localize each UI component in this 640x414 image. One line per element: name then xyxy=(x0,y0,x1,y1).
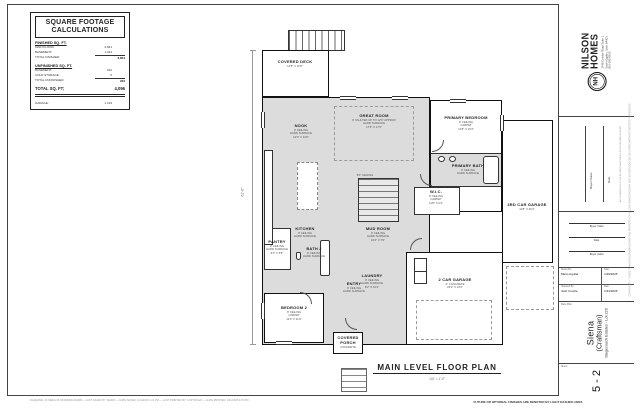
initial-label: Buyer Initial xyxy=(559,253,634,256)
double-rule xyxy=(35,94,125,98)
room-label-covered-porch: COVERED PORCHCONCRETE xyxy=(332,336,364,349)
row-label: TOTAL SQ. FT; xyxy=(35,86,95,93)
garage-door-dashed xyxy=(416,300,492,340)
garage-row: GARAGE: 1,193 xyxy=(35,101,125,105)
window xyxy=(340,96,356,100)
main-plan-label: Main Plan: xyxy=(561,303,572,306)
logo-section: NH NILSON HOMES 1748 Combe Road Suite 1 … xyxy=(559,4,634,117)
grand-total-row: TOTAL SQ. FT; 4,096 xyxy=(35,86,125,93)
buyer-initials-section: Buyer Initial Date Buyer Initial xyxy=(559,212,634,268)
room-detail: 10'4" X 7'0" xyxy=(352,239,404,243)
future-finish-dashed xyxy=(506,266,554,310)
brand-line: HOMES xyxy=(590,32,599,68)
drawn-by-cell: Drawn By: Mario Aguilar xyxy=(559,268,602,285)
ceiling-drop-note: 8'0" CEILING AT DROP xyxy=(338,174,392,181)
checked-by-value: Josh Crowle xyxy=(561,289,599,293)
buyer-notes-section: Buyer Notes Date ALL CHANGES MUST BE INI… xyxy=(559,117,634,212)
window xyxy=(276,341,292,345)
square-footage-title-line1: SQUARE FOOTAGE xyxy=(36,19,124,27)
room-label-nook: NOOK9' CEILINGHARD SURFACE12'0" X 13'0" xyxy=(276,124,326,140)
nh-monogram-icon: NH xyxy=(587,72,606,91)
room-detail: 23'0" X 24'4" xyxy=(424,286,486,290)
left-dimension-line xyxy=(252,50,253,345)
window xyxy=(450,99,466,103)
third-car-garage-area xyxy=(502,120,553,263)
window xyxy=(261,112,265,128)
room-detail: 12'8" X 10'0" xyxy=(266,65,324,69)
drawn-by-value: Mario Aguilar xyxy=(561,272,599,276)
room-detail: 11'8" X 6'4" xyxy=(414,202,458,206)
initial-line xyxy=(569,229,625,238)
row-value: 4,096 xyxy=(95,86,125,93)
row-label: TOTAL UNFINISHED: xyxy=(35,78,95,84)
room-detail: 8'2" X 10'4" xyxy=(350,286,394,290)
copyright-text: COPYRIGHT — THESE PLANS AND DRAWINGS ARE… xyxy=(629,10,632,390)
date-label: Date xyxy=(607,177,611,183)
title-block-panel: NH NILSON HOMES 1748 Combe Road Suite 1 … xyxy=(558,4,634,396)
plan-name: Siena xyxy=(585,320,595,345)
window xyxy=(500,115,504,131)
initial-line xyxy=(569,243,625,252)
room-detail: HARD SURFACE xyxy=(446,172,490,176)
plan-name-block: Siena (Craftsman) Stagecoach Estates - L… xyxy=(585,303,608,363)
row-label: TOTAL FINISHED: xyxy=(35,55,95,61)
initial-line xyxy=(569,215,625,224)
drawn-by-grid: Drawn By: Mario Aguilar Date: 1/29/2025 … xyxy=(559,268,634,301)
logo-initials: NH xyxy=(594,77,600,86)
room-detail: HARD SURFACE xyxy=(284,235,326,239)
room-label-great-room: GREAT ROOM9' VAULTED UP TO 12'0" APPROXH… xyxy=(334,114,414,130)
brand-block: NILSON HOMES 1748 Combe Road Suite 1 Sou… xyxy=(581,29,612,69)
row-label: GARAGE: xyxy=(35,101,95,105)
sheet-number: 5 - 2 xyxy=(591,370,603,392)
room-label-bath-2: BATH 29' CEILINGHARD SURFACE xyxy=(294,247,334,259)
room-label-pantry: PANTRY9' CEILINGHARD SURFACE6'0" X 6'8" xyxy=(262,240,292,256)
left-dimension-text: 61'-0" xyxy=(240,188,244,197)
sheet-label: Sheet: xyxy=(561,365,568,368)
subdivision-lot: Stagecoach Estates - Lot 229 xyxy=(604,308,608,358)
room-detail: CONCRETE xyxy=(332,346,364,350)
row-value: 242 xyxy=(95,78,125,84)
room-detail: 17'8" X 17'0" xyxy=(334,126,414,130)
room-label-primary-bath: PRIMARY BATH9' CEILINGHARD SURFACE xyxy=(446,164,490,176)
room-label-2-car-garage: 2 CAR GARAGE4" CONCRETE23'0" X 24'4" xyxy=(424,278,486,290)
room-label-laundry: LAUNDRY9' CEILINGHARD SURFACE8'2" X 10'4… xyxy=(350,274,394,290)
covered-deck-area xyxy=(262,50,329,97)
total-finished-row: TOTAL FINISHED: 3,854 xyxy=(35,55,125,61)
square-footage-title-line2: CALCULATIONS xyxy=(36,27,124,35)
square-footage-title: SQUARE FOOTAGE CALCULATIONS xyxy=(35,16,125,38)
drawn-by-label: Drawn By: xyxy=(561,269,599,271)
buyer-notes-label: Buyer Notes xyxy=(589,172,593,189)
room-detail: 12'0" X 13'0" xyxy=(276,136,326,140)
washer-dryer-divider xyxy=(414,271,427,272)
brand-name: NILSON HOMES xyxy=(581,32,599,68)
plan-scale: 1/4" = 1'-0" xyxy=(352,377,522,381)
room-detail: 13'8" X 15'4" xyxy=(438,128,494,132)
room-label-kitchen: KITCHEN9' CEILINGHARD SURFACE xyxy=(284,227,326,239)
dashed-lines-note: FUTURE OR OPTIONAL FINISHES ARE DENOTED … xyxy=(458,400,598,404)
primary-sink xyxy=(438,156,445,162)
total-unfinished-row: TOTAL UNFINISHED: 242 xyxy=(35,78,125,84)
room-detail: 12'4" X 11'0" xyxy=(268,318,320,322)
room-label-covered-deck: COVERED DECK12'8" X 10'0" xyxy=(266,60,324,68)
company-address: 1748 Combe Road Suite 1 South Ogden, Uta… xyxy=(601,36,612,69)
kitchen-island xyxy=(297,162,318,210)
checked-by-cell: Checked By: Josh Crowle xyxy=(559,285,602,301)
signature-line xyxy=(585,126,586,202)
checked-by-label: Checked By: xyxy=(561,286,599,288)
primary-sink xyxy=(449,156,456,162)
plan-name-section: Main Plan: Siena (Craftsman) Stagecoach … xyxy=(559,302,634,364)
room-label-wic: W.I.C.9' CEILINGCARPET11'8" X 6'4" xyxy=(414,190,458,206)
square-footage-box: SQUARE FOOTAGE CALCULATIONS FINISHED SQ.… xyxy=(30,12,130,110)
file-info-text: FILENAME: 30 SIENA 3S STANDING RAMB — LA… xyxy=(30,399,360,402)
window xyxy=(392,96,408,100)
note-line: AT DROP xyxy=(338,178,392,182)
plan-style: (Craftsman) xyxy=(596,314,603,351)
signature-line xyxy=(603,126,604,202)
kitchen-counter xyxy=(264,150,273,245)
notes-disclaimer: ALL CHANGES MUST BE INITIALED AND DATED … xyxy=(620,119,622,209)
basement-stairwell xyxy=(358,178,399,222)
room-detail: HARD SURFACE xyxy=(294,255,334,259)
initial-label: Date xyxy=(559,239,634,242)
drawn-by-section: Drawn By: Mario Aguilar Date: 1/29/2025 … xyxy=(559,268,634,302)
room-label-3rd-car-garage: 3RD CAR GARAGE11'8" X 26'4" xyxy=(499,203,555,211)
room-detail: 11'8" X 26'4" xyxy=(499,208,555,212)
room-label-primary-bedroom: PRIMARY BEDROOM9' CEILINGCARPET13'8" X 1… xyxy=(438,116,494,132)
initial-label: Buyer Initial xyxy=(559,225,634,228)
nilson-homes-logo: NH NILSON HOMES 1748 Combe Road Suite 1 … xyxy=(581,10,612,110)
row-value: 1,193 xyxy=(95,101,125,105)
window xyxy=(261,303,265,319)
plan-title-block: MAIN LEVEL FLOOR PLAN 1/4" = 1'-0" xyxy=(352,357,522,381)
row-value: 3,854 xyxy=(95,55,125,61)
room-detail: 6'0" X 6'8" xyxy=(262,252,292,256)
room-label-mud-room: MUD ROOM9' CEILINGHARD SURFACE10'4" X 7'… xyxy=(352,227,404,243)
plan-title: MAIN LEVEL FLOOR PLAN xyxy=(373,363,500,374)
drawing-sheet: SQUARE FOOTAGE CALCULATIONS FINISHED SQ.… xyxy=(0,0,640,414)
room-label-bedroom-2: BEDROOM 29' CEILINGCARPET12'4" X 11'0" xyxy=(268,306,320,322)
room-detail: HARD SURFACE xyxy=(336,290,372,294)
address-line: 801-392-8100 xyxy=(608,36,612,69)
sheet-number-section: Sheet: 5 - 2 xyxy=(559,364,634,395)
deck-stairs xyxy=(288,30,345,51)
